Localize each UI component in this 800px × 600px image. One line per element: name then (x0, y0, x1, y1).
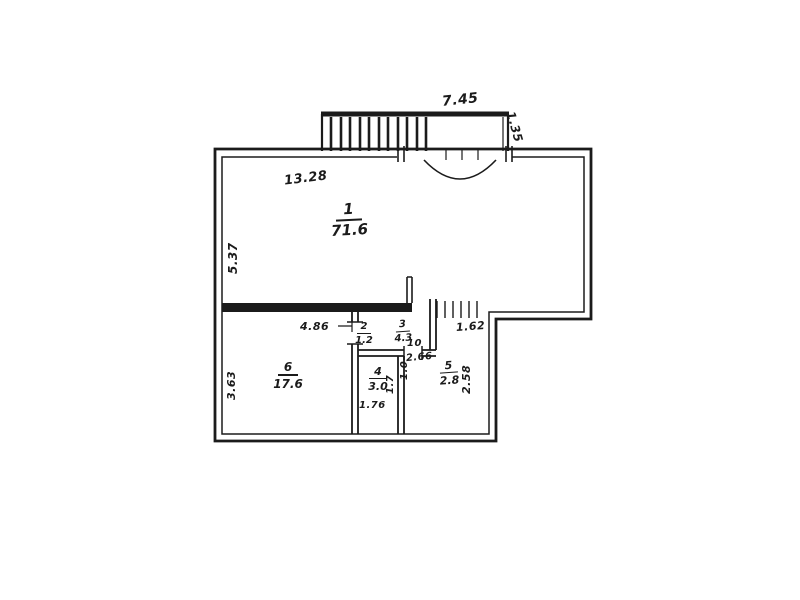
room-6-number: 6 (278, 361, 298, 376)
room-1-number: 1 (335, 201, 362, 221)
dim-room5-right: 2.58 (461, 365, 472, 394)
door-swing-arc (424, 160, 496, 179)
room-1-label: 1 71.6 (324, 201, 374, 239)
right-opening-hatch (437, 301, 477, 318)
dim-opening-right: 1.62 (456, 320, 486, 333)
room-1-area: 71.6 (325, 222, 374, 239)
room-2-label: 2 1.2 (351, 322, 377, 346)
outer-walls (215, 149, 591, 441)
floorplan-drawing (0, 0, 800, 600)
room-2-number: 2 (357, 322, 372, 334)
entrance-door (398, 146, 512, 179)
dim-door-center: 10 (407, 339, 422, 349)
room-3-number: 3 (395, 320, 411, 333)
room-2-area: 1.2 (351, 336, 377, 346)
floor-plan-scan: 1 71.6 2 1.2 3 4.3 4 3.0 5 2.8 6 17.6 7.… (0, 0, 800, 600)
dim-room4-side: 1.7 (386, 375, 396, 394)
room-6-label: 6 17.6 (264, 361, 312, 390)
dim-room4-bottom: 1.76 (359, 401, 386, 411)
dim-center-vertical: 1.0 (400, 361, 410, 380)
wall-stub (407, 277, 412, 303)
room-5-number: 5 (439, 359, 458, 373)
dim-room6-left: 3.63 (226, 371, 237, 400)
dim-room1-left: 5.37 (227, 242, 239, 274)
dim-stairs-top: 7.45 (441, 91, 479, 109)
interior-walls (222, 277, 477, 434)
stair-treads-hatch (331, 117, 426, 151)
dim-room6-top: 4.86 (300, 321, 329, 332)
room-6-area: 17.6 (264, 378, 312, 390)
staircase (321, 114, 509, 151)
